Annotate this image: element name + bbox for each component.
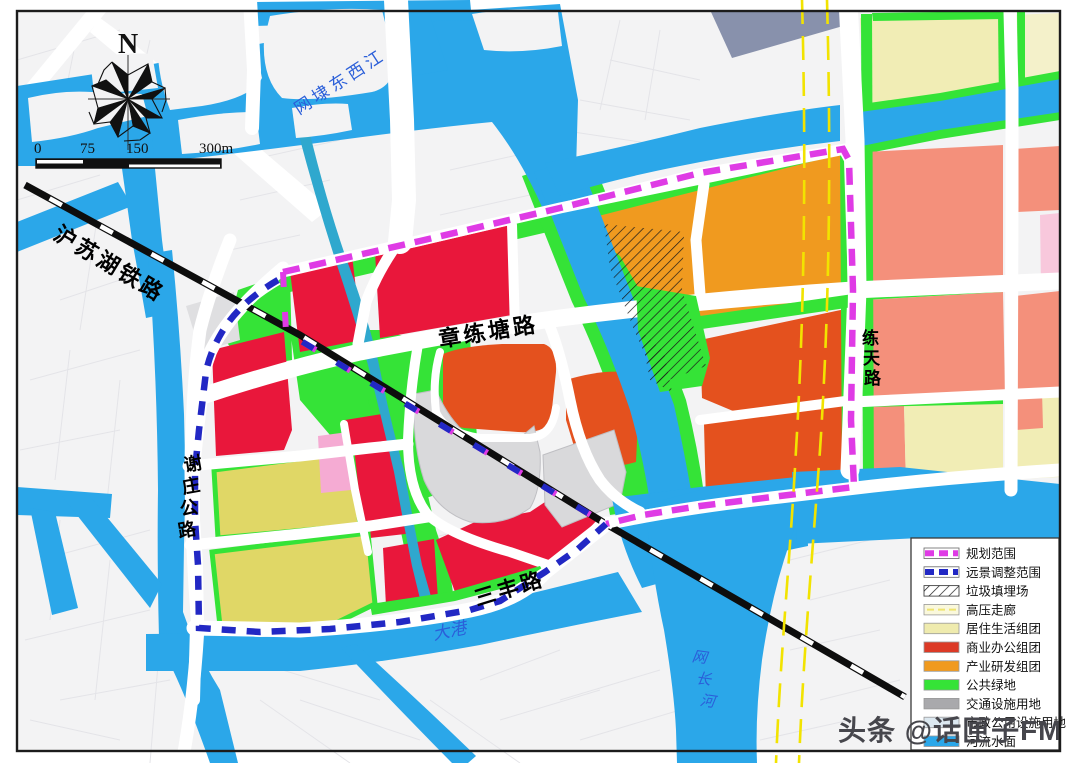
svg-text:商业办公组团: 商业办公组团 [966, 640, 1041, 655]
svg-text:路: 路 [864, 368, 882, 388]
svg-text:谢: 谢 [182, 452, 203, 476]
svg-text:150: 150 [126, 141, 149, 157]
svg-text:公: 公 [178, 497, 199, 520]
svg-text:0: 0 [34, 141, 42, 157]
svg-text:交通设施用地: 交通设施用地 [966, 696, 1042, 711]
svg-text:公共绿地: 公共绿地 [966, 678, 1017, 693]
svg-text:天: 天 [863, 349, 881, 368]
svg-text:居住生活组团: 居住生活组团 [966, 622, 1041, 636]
svg-text:庄: 庄 [180, 474, 201, 498]
svg-text:远景调整范围: 远景调整范围 [966, 565, 1041, 580]
svg-text:高压走廊: 高压走廊 [966, 602, 1016, 617]
svg-text:垃圾填埋场: 垃圾填埋场 [966, 584, 1029, 599]
svg-text:头条 @话匣子FM: 头条 @话匣子FM [838, 715, 1063, 746]
svg-text:300m: 300m [199, 141, 234, 157]
svg-text:规划范围: 规划范围 [966, 546, 1016, 561]
svg-text:75: 75 [80, 141, 95, 157]
svg-text:练: 练 [862, 328, 879, 348]
svg-text:N: N [118, 29, 138, 60]
svg-text:产业研发组团: 产业研发组团 [966, 659, 1041, 674]
